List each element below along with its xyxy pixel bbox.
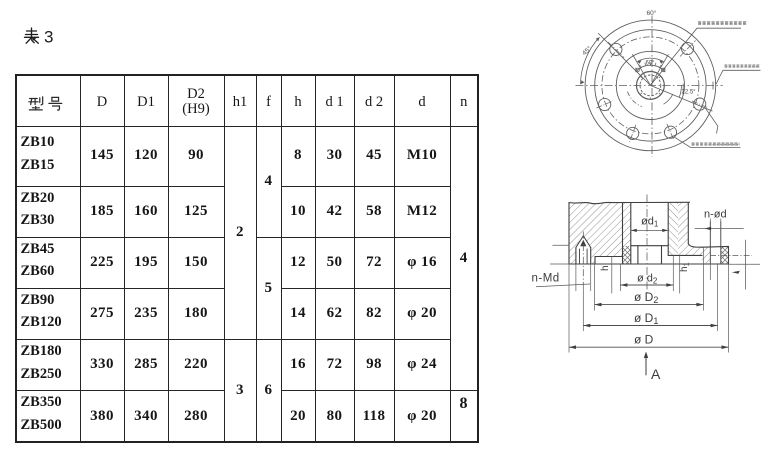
svg-text:ø D1: ø D1 bbox=[634, 311, 658, 326]
svg-text:h: h bbox=[600, 265, 611, 271]
svg-text:ø D: ø D bbox=[634, 333, 654, 347]
svg-text:ø d2: ø d2 bbox=[637, 273, 658, 286]
svg-text:22.5°: 22.5° bbox=[682, 90, 697, 96]
svg-text:45°: 45° bbox=[581, 44, 594, 57]
svg-text:ød1: ød1 bbox=[641, 216, 659, 229]
svg-text:ø D2: ø D2 bbox=[634, 290, 658, 305]
svg-text:n-Md: n-Md bbox=[532, 273, 560, 285]
svg-text:3: 3 bbox=[44, 28, 53, 45]
svg-text:h1: h1 bbox=[679, 262, 691, 272]
svg-text:60°: 60° bbox=[647, 9, 657, 17]
svg-text:A: A bbox=[651, 366, 661, 382]
svg-text:n-ød: n-ød bbox=[704, 209, 727, 221]
svg-text:60°: 60° bbox=[646, 61, 656, 67]
